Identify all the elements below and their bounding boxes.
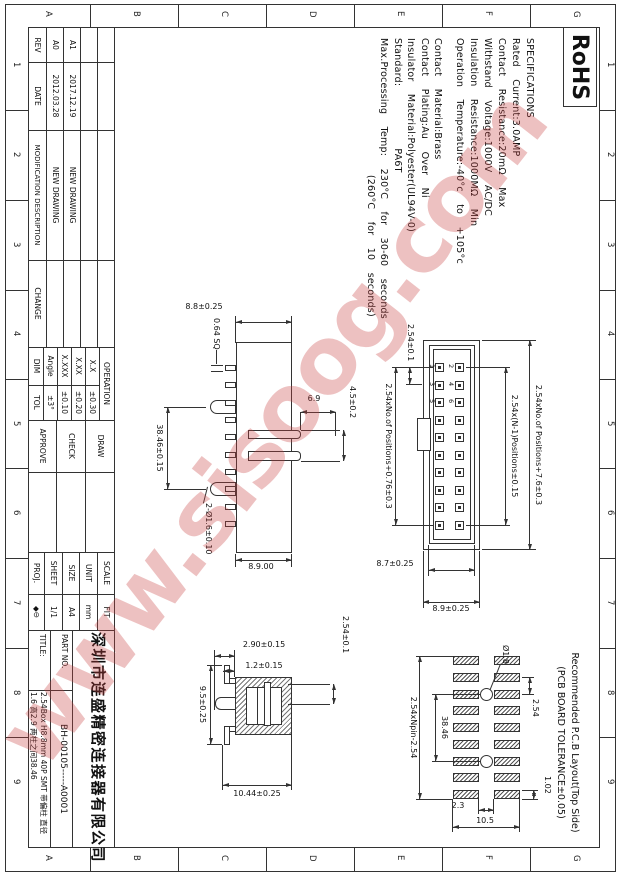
- zone-number: 6: [605, 510, 615, 515]
- pin: [435, 486, 444, 495]
- slot-rib: [248, 430, 301, 439]
- dim-line: [215, 656, 235, 657]
- leader-line: [216, 350, 217, 364]
- zone-number: 1: [605, 62, 615, 67]
- tick: [266, 848, 267, 872]
- dim-front-height: 8.8±0.25: [180, 302, 228, 311]
- dim-slot-width: 4.5±0.2: [348, 386, 357, 418]
- zone-letter: D: [307, 855, 317, 862]
- rev-value: A0: [51, 28, 60, 62]
- tick: [5, 737, 28, 738]
- tol-footer-tol: TOL: [32, 385, 41, 420]
- zone-letter: B: [131, 855, 141, 861]
- spec-line: Contact Resistance:20mΩ Max: [496, 38, 507, 207]
- pin: [225, 382, 236, 388]
- pin: [455, 486, 464, 495]
- dim-pcb-height: 10.5: [470, 816, 500, 825]
- smt-pad: [453, 723, 479, 732]
- change-header: CHANGE: [33, 260, 42, 347]
- tick: [5, 379, 28, 380]
- zone-number: 8: [605, 690, 615, 695]
- dim-line: [395, 367, 396, 525]
- tol-val: ±0.30: [88, 385, 97, 420]
- tol-val: ±0.20: [74, 385, 83, 420]
- smt-pad: [453, 773, 479, 782]
- desc-header: MODIFICATION DESCRIPTION: [33, 130, 41, 260]
- center-peg: [215, 697, 236, 710]
- tick: [530, 848, 531, 872]
- table-line: [71, 347, 72, 420]
- tick: [530, 4, 531, 27]
- dim-line: [423, 602, 480, 603]
- ext-line: [300, 412, 301, 430]
- size-value: A4: [67, 594, 76, 630]
- tick: [600, 558, 616, 559]
- smt-pad: [453, 706, 479, 715]
- pcb-subtitle: (PCB BOARD TOLERANCE±0.05): [555, 630, 566, 855]
- slot-rib: [248, 451, 301, 461]
- table-line: [85, 420, 86, 552]
- table-line: [44, 552, 45, 630]
- rev-value: A1: [68, 28, 77, 62]
- zone-letter: A: [43, 855, 53, 861]
- drawing-sheet: G F E D C B A G F E D C B A 1 2 3 4 5 6 …: [0, 0, 620, 877]
- sheet-value: 1/1: [49, 594, 58, 630]
- dim-inner-height: 8.7±0.25: [373, 559, 417, 568]
- table-line: [114, 28, 115, 848]
- pin-number: 3: [428, 382, 436, 386]
- ext-line: [301, 461, 340, 462]
- ext-line: [288, 684, 330, 685]
- tick: [600, 110, 616, 111]
- size-label: SIZE: [67, 552, 76, 594]
- check-label: CHECK: [67, 420, 76, 472]
- smt-pad: [453, 740, 479, 749]
- zone-number: 8: [11, 690, 21, 695]
- dim-row-gap: 2.3: [446, 801, 470, 810]
- dim-peg-height: 2.90±0.15: [240, 640, 288, 649]
- unit-value: mm: [84, 594, 93, 630]
- spec-line: Insulation Resistance:1000MΩ Min: [468, 38, 479, 226]
- zone-letter: C: [219, 11, 229, 17]
- tick: [5, 558, 28, 559]
- pin-number: 5: [428, 399, 436, 403]
- dim-section-total: 10.44±0.25: [228, 789, 286, 798]
- tol-dim: X.XXX: [60, 347, 69, 385]
- tick: [354, 848, 355, 872]
- dim-hole-dia: Ø1.8: [501, 645, 510, 664]
- zone-letter: G: [571, 11, 581, 18]
- zone-letter: F: [483, 11, 493, 16]
- title-line1: 2.54Box H8.8mm 40P SMT 带偏柱 直径: [38, 692, 49, 848]
- table-line: [56, 420, 57, 552]
- dim-section-pitch: 2.54±0.1: [341, 616, 350, 653]
- zone-number: 6: [11, 510, 21, 515]
- draw-label: DRAW: [96, 420, 105, 472]
- tick: [600, 648, 616, 649]
- tol-val: ±3°: [46, 385, 55, 420]
- spec-line: Insulator Material:Polyester(UL94V-0): [405, 38, 416, 232]
- ext-line: [406, 384, 422, 385]
- zone-number: 9: [605, 779, 615, 784]
- zone-number: 3: [605, 242, 615, 247]
- pin-number: 2: [447, 364, 455, 368]
- table-line: [80, 28, 81, 347]
- pin: [455, 363, 464, 372]
- screenshot-root: G F E D C B A G F E D C B A 1 2 3 4 5 6 …: [0, 0, 620, 877]
- smt-pad: [453, 790, 479, 799]
- table-line: [46, 28, 47, 347]
- tick: [442, 848, 443, 872]
- ext-line: [164, 407, 206, 408]
- smt-pad: [494, 723, 520, 732]
- table-line: [97, 552, 98, 630]
- zone-letter: E: [395, 855, 405, 860]
- key-notch: [417, 418, 431, 451]
- ext-line: [301, 430, 340, 431]
- title-line2: 1.6 高2.9 两柱之间38.46: [28, 692, 39, 848]
- sheet-label: SHEET: [49, 552, 58, 594]
- dim-pad-pitch: 2.54: [531, 699, 540, 717]
- ext-line: [522, 694, 534, 695]
- zone-number: 4: [11, 331, 21, 336]
- pin: [225, 452, 236, 458]
- ext-line: [466, 525, 510, 526]
- tick: [600, 737, 616, 738]
- pin: [435, 468, 444, 477]
- ext-line: [392, 525, 434, 526]
- zone-number: 1: [11, 62, 21, 67]
- smt-pad: [494, 773, 520, 782]
- pin: [435, 503, 444, 512]
- dim-line: [223, 671, 235, 672]
- zone-letter: A: [43, 11, 53, 17]
- spec-line: Rated Current:3.0AMP: [510, 38, 521, 156]
- dim-line: [429, 570, 475, 571]
- zone-number: 2: [11, 152, 21, 157]
- proj-label: PROJ.: [32, 552, 41, 594]
- tolerance-title: OPERATION: [102, 347, 111, 420]
- pin: [225, 469, 236, 475]
- pin: [225, 486, 236, 492]
- zone-letter: G: [571, 855, 581, 862]
- spec-line: SPECIFICATIONS: [524, 38, 535, 118]
- tol-dim: X.XX: [74, 347, 83, 385]
- projection-symbol: ◆⊖: [32, 594, 41, 630]
- table-line: [97, 28, 98, 347]
- zone-letter: B: [131, 11, 141, 17]
- pin-number: 6: [447, 399, 455, 403]
- dim-top-height: 8.9±0.25: [429, 604, 473, 613]
- tick: [5, 110, 28, 111]
- smt-pad: [494, 673, 520, 682]
- tick: [5, 648, 28, 649]
- tick: [90, 4, 91, 27]
- dim-line: [223, 785, 292, 786]
- zone-number: 9: [11, 779, 21, 784]
- dim-line: [167, 407, 168, 489]
- tick: [178, 4, 179, 27]
- tick: [266, 4, 267, 27]
- table-line: [62, 552, 63, 630]
- tol-dim: Angle: [46, 347, 55, 385]
- table-line: [85, 347, 86, 420]
- pin: [435, 381, 444, 390]
- table-line: [43, 347, 44, 420]
- ext-line: [214, 650, 215, 710]
- company-name: 深圳市连盛精密连接器有限公司: [88, 632, 109, 847]
- smt-pad: [453, 656, 479, 665]
- zone-number: 4: [605, 331, 615, 336]
- unit-label: UNIT: [84, 552, 93, 594]
- tol-val: ±0.10: [60, 385, 69, 420]
- desc-value: NEW DRAWING: [51, 130, 60, 260]
- ext-line: [522, 799, 538, 800]
- approve-label: APPROVE: [38, 420, 47, 472]
- smt-pad: [494, 790, 520, 799]
- ext-line: [211, 365, 223, 366]
- ext-line: [164, 489, 206, 490]
- smt-pad: [453, 673, 479, 682]
- zone-letter: D: [307, 11, 317, 18]
- ext-line: [288, 704, 330, 705]
- dim-front-body: 8.9.00: [240, 562, 282, 571]
- smt-pad: [494, 740, 520, 749]
- pin: [225, 417, 236, 423]
- rev-header: REV: [33, 28, 42, 62]
- dim-peg: 2-Ø1.6±0.10: [204, 503, 213, 555]
- date-value: 2017.12.19: [68, 62, 77, 130]
- spec-line: Contact Material:Brass: [432, 38, 443, 160]
- dim-body-length: 2.54xNo.of Positions+0.76±0.3: [384, 365, 393, 527]
- pcb-title: Recommended P.C.B Layout(Top Side): [569, 630, 580, 855]
- dim-line: [529, 340, 530, 550]
- pin: [435, 398, 444, 407]
- table-line: [79, 552, 80, 630]
- dim-slot-depth: 6.9: [304, 394, 324, 403]
- dim-line: [419, 656, 420, 799]
- dim-line: [435, 694, 436, 761]
- zone-number: 5: [11, 421, 21, 426]
- dim-line: [409, 367, 410, 384]
- part-no-value: BH-00105-----A0001: [58, 690, 68, 848]
- dim-pad-width: 1.02: [543, 776, 552, 794]
- ext-line: [291, 734, 292, 790]
- tick: [5, 200, 28, 201]
- zone-letter: C: [219, 855, 229, 861]
- date-value: 2012.03.28: [51, 62, 60, 130]
- part-no-label: PART NO.: [60, 634, 69, 668]
- table-line: [63, 28, 64, 347]
- scale-label: SCALE: [102, 552, 111, 594]
- pin: [225, 521, 236, 527]
- ext-line: [207, 744, 222, 745]
- dim-line: [529, 677, 530, 694]
- table-line: [57, 347, 58, 420]
- smt-pad: [494, 757, 520, 766]
- desc-value: NEW DRAWING: [68, 130, 77, 260]
- pin: [455, 381, 464, 390]
- locating-hole: [480, 755, 493, 768]
- dim-pitch: 2.54±0.1: [406, 324, 415, 361]
- dim-line: [505, 367, 506, 525]
- tick: [600, 468, 616, 469]
- tick: [600, 379, 616, 380]
- front-body: [236, 342, 292, 553]
- pin: [455, 468, 464, 477]
- tol-footer-dim: DIM: [32, 347, 41, 385]
- pin: [455, 503, 464, 512]
- pin: [455, 433, 464, 442]
- pin: [225, 400, 236, 406]
- tick: [354, 4, 355, 27]
- pin: [455, 451, 464, 460]
- date-header: DATE: [33, 62, 42, 130]
- smt-pad: [494, 706, 520, 715]
- pin: [435, 416, 444, 425]
- dim-line: [301, 412, 336, 413]
- dim-line: [333, 684, 334, 704]
- dim-pad-total: 2.54xNpin-2.54: [409, 656, 418, 799]
- dim-line: [453, 827, 520, 828]
- dim-line: [479, 810, 494, 811]
- contact-pin: [264, 682, 271, 726]
- spec-line: Standard: PA6T: [392, 38, 403, 173]
- dim-total-length: 2.54xNo.of Positions+7.6±0.3: [534, 363, 543, 527]
- pin: [225, 434, 236, 440]
- rohs-badge: RoHS: [563, 27, 597, 107]
- dim-pin-size: 0.64 SQ: [212, 318, 221, 350]
- zone-number: 7: [605, 600, 615, 605]
- dim-lead-height: 1.2±0.15: [244, 661, 284, 670]
- dim-hole-span: 38.46: [440, 694, 449, 761]
- pin: [455, 521, 464, 530]
- ext-line: [432, 761, 480, 762]
- dim-peg-span: 38.46±0.15: [155, 400, 164, 496]
- pin: [455, 398, 464, 407]
- locating-hole: [480, 688, 493, 701]
- dim-section-width: 9.5±0.25: [198, 665, 207, 744]
- dim-line: [533, 790, 534, 799]
- smt-lead-foot: [224, 726, 230, 745]
- table-line: [99, 347, 100, 420]
- scale-value: FIT: [102, 594, 111, 630]
- spec-line: Withstand Voltage:1000V AC/DC: [482, 38, 493, 216]
- pin: [435, 363, 444, 372]
- zone-number: 5: [605, 421, 615, 426]
- zone-number: 7: [11, 600, 21, 605]
- smt-lead-foot: [224, 665, 230, 684]
- cavity-line: [257, 687, 258, 725]
- pin: [225, 504, 236, 510]
- spec-line: Contact Plating:Au Over Ni: [419, 38, 430, 198]
- tick: [600, 200, 616, 201]
- tick: [178, 848, 179, 872]
- ext-line: [335, 412, 336, 436]
- title-label: TITLE:: [38, 634, 47, 657]
- smt-pad: [494, 690, 520, 699]
- ext-line: [416, 799, 453, 800]
- ext-line: [211, 371, 223, 372]
- zone-letter: F: [483, 855, 493, 860]
- dim-line: [210, 665, 211, 744]
- dim-pin-span: 2.54x(N-1)Positions±0.15: [510, 367, 519, 525]
- dim-line: [343, 430, 344, 461]
- zone-letter: E: [395, 11, 405, 16]
- spec-line: Operation Temperature:-40°c to +105°c: [454, 38, 465, 264]
- tol-dim: X.X: [88, 347, 97, 385]
- tick: [5, 290, 28, 291]
- pin: [455, 416, 464, 425]
- tick: [5, 468, 28, 469]
- pin: [435, 521, 444, 530]
- spec-line: Max.Processing Temp: 230°C for 30-60 sec…: [378, 38, 389, 319]
- pin: [435, 433, 444, 442]
- table-line: [72, 630, 73, 848]
- tick: [600, 290, 616, 291]
- tick: [442, 4, 443, 27]
- pin-number: 4: [447, 382, 455, 386]
- table-line: [50, 630, 51, 848]
- dim-line: [236, 560, 292, 561]
- spec-line: (260°C for 10 seconds): [365, 38, 376, 317]
- zone-number: 2: [605, 152, 615, 157]
- pin: [435, 451, 444, 460]
- zone-number: 3: [11, 242, 21, 247]
- dim-line: [236, 322, 292, 323]
- pin: [225, 365, 236, 371]
- table-line: [28, 472, 115, 473]
